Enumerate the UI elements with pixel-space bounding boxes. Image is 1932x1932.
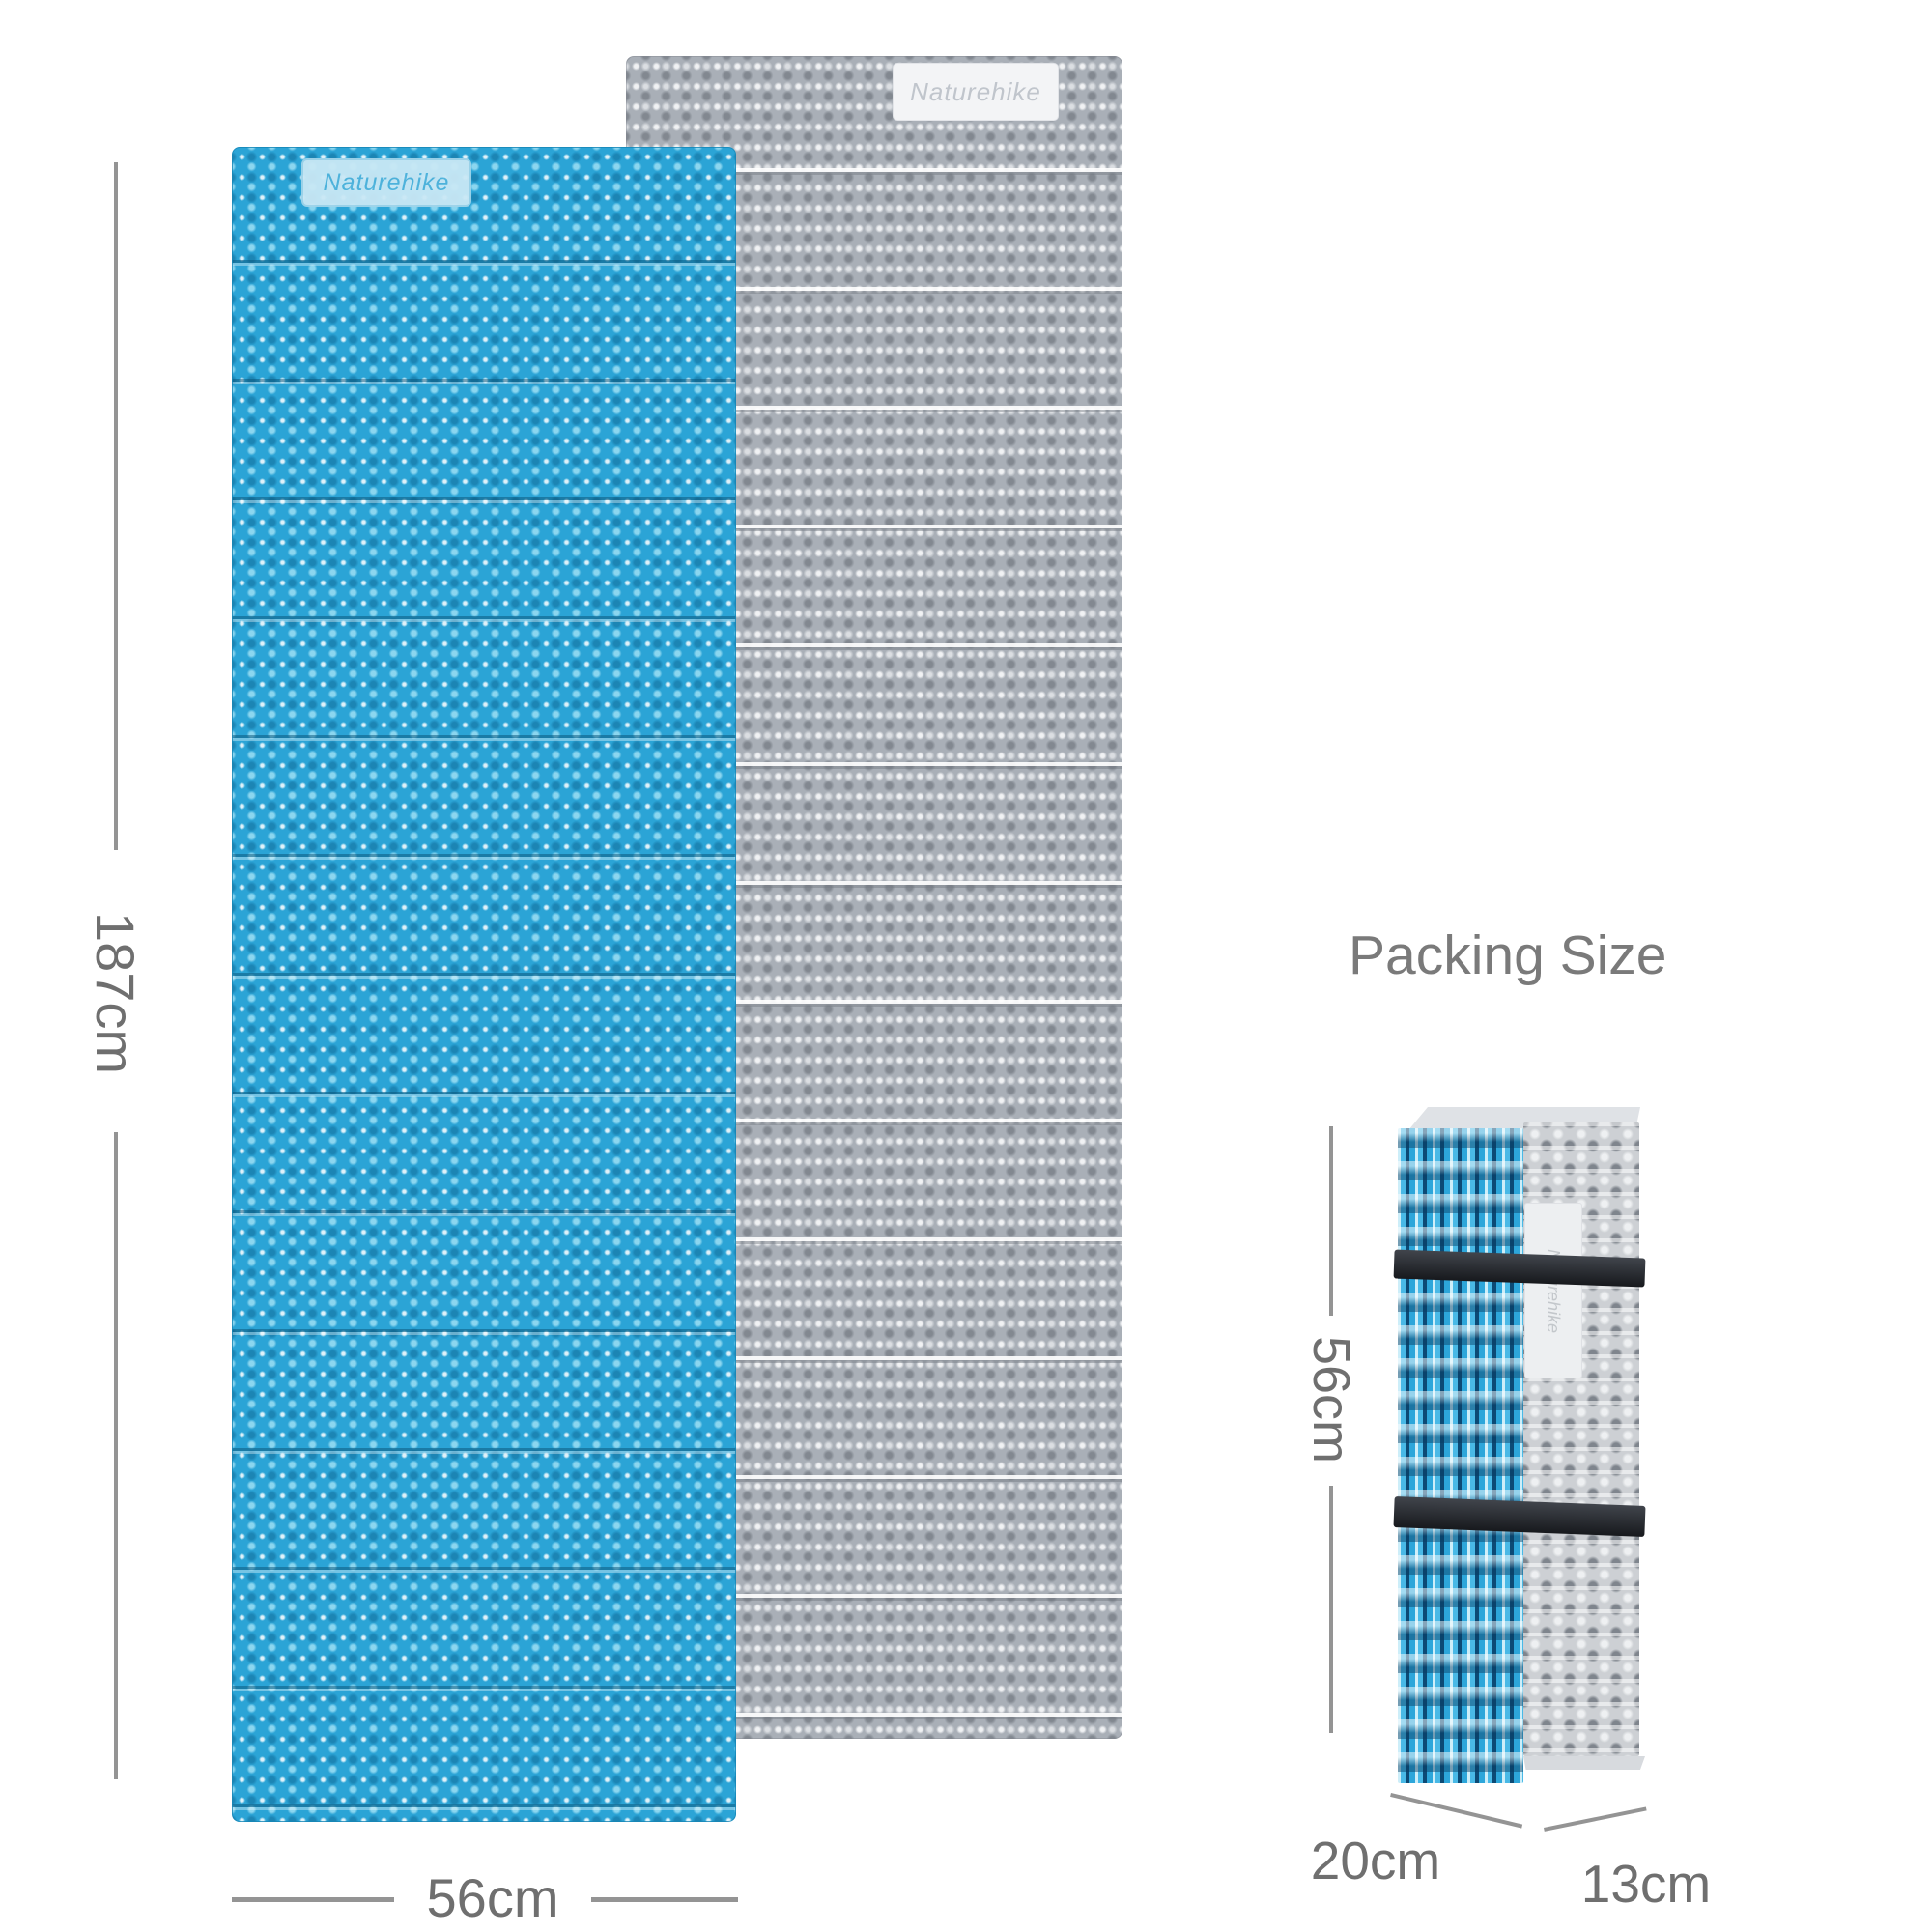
brand-label-gray: Naturehike	[894, 64, 1058, 120]
width-dimension-line-right	[591, 1897, 738, 1902]
packed-mat-base-edge	[1523, 1756, 1645, 1770]
packing-height-line-bottom	[1329, 1486, 1333, 1733]
packing-size-title: Packing Size	[1349, 923, 1696, 987]
packing-height-line-top	[1329, 1126, 1333, 1316]
width-dimension-line-left	[232, 1897, 394, 1902]
packing-width-line	[1544, 1806, 1647, 1831]
packed-mat-front-face	[1398, 1128, 1523, 1783]
length-dimension-line-bottom	[114, 1132, 118, 1779]
blue-mat-unfolded: Naturehike	[232, 147, 736, 1822]
packing-depth-line	[1390, 1793, 1522, 1829]
length-dimension-label: 187cm	[87, 838, 145, 1148]
brand-name-text: Naturehike	[910, 77, 1041, 107]
brand-name-text: Naturehike	[324, 169, 450, 197]
packing-width-label: 13cm	[1559, 1855, 1733, 1913]
brand-label-blue: Naturehike	[301, 158, 471, 207]
brand-label-packed: Naturehike	[1525, 1204, 1581, 1378]
product-spec-illustration: Naturehike Naturehike 187cm 56cm Packing…	[0, 0, 1932, 1932]
packing-depth-label: 20cm	[1289, 1832, 1463, 1889]
packing-height-label: 56cm	[1304, 1293, 1358, 1506]
length-dimension-line-top	[114, 162, 118, 850]
width-dimension-label: 56cm	[398, 1868, 587, 1926]
